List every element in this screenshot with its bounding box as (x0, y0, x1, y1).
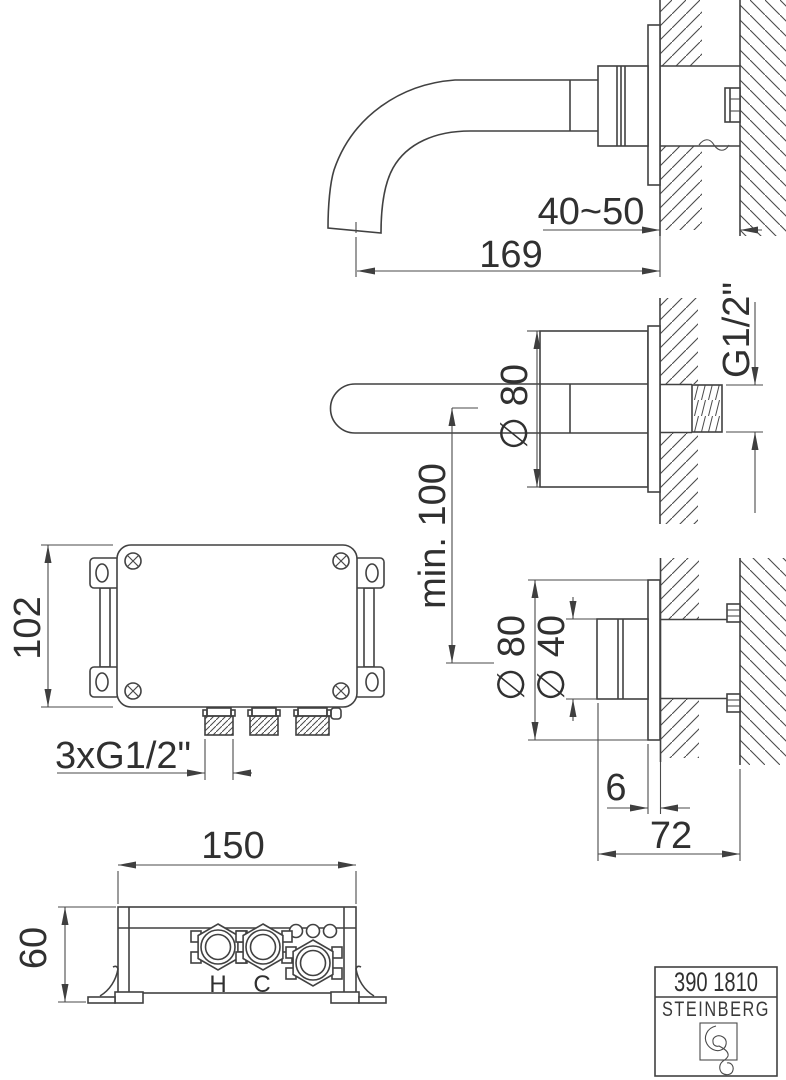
view-spout-side: 169 40~50 (328, 0, 786, 277)
rosette-flange (648, 25, 660, 185)
wall-hatch-back (740, 0, 786, 236)
rosette-flange (648, 580, 660, 740)
dim-body-width: 150 (201, 825, 264, 867)
label-cold: C (253, 971, 270, 998)
wall-fitting (727, 694, 740, 712)
wall-hatch-back (740, 558, 786, 765)
model-number: 390 1810 (674, 967, 758, 997)
bracket-tab (354, 558, 384, 588)
wall-hatch (660, 146, 702, 230)
bracket-tab (354, 667, 384, 697)
pilot-hole (324, 925, 337, 938)
dim-spout-length: 169 (479, 234, 542, 276)
mounting-foot (88, 966, 143, 1003)
bracket-tab (90, 558, 120, 588)
dim-thread-size: G1/2" (716, 282, 758, 378)
bracket-rail-right (364, 588, 374, 667)
wall-hatch (661, 558, 699, 619)
dim-handle-diameter: ∅ 40 (531, 615, 573, 701)
view-body-front: 102 3xG1/2" (7, 545, 384, 780)
wall-fitting (725, 88, 740, 122)
wall-hatch (660, 298, 698, 384)
bracket-rail-left (100, 588, 110, 667)
brand-name: STEINBERG (662, 998, 770, 1021)
wall-fitting (727, 604, 740, 622)
connection-nipple (203, 708, 235, 735)
dim-rosette-diameter-top: ∅ 80 (494, 364, 536, 450)
dim-plate-thickness: 6 (605, 767, 626, 809)
technical-drawing-steinberg-390-1810: 169 40~50 ∅ 80 G1/2" (0, 0, 786, 1080)
title-block: 390 1810 STEINBERG (655, 967, 777, 1076)
break-line (699, 140, 729, 151)
spout-base-cap (598, 66, 648, 146)
dim-min-clearance: min. 100 (412, 463, 454, 609)
label-hot: H (209, 971, 226, 998)
rosette-flange (648, 326, 660, 492)
view-valve-handle-side: ∅ 80 ∅ 40 6 72 (491, 558, 786, 861)
thread-section (692, 385, 722, 432)
dim-body-height: 102 (7, 596, 49, 659)
rosette-top (540, 331, 648, 487)
connection-nipple (248, 708, 280, 735)
view-body-bottom: H C 150 60 (13, 825, 386, 1003)
connection-nipple (294, 708, 341, 735)
outlet-port-nut (286, 940, 342, 986)
wall-hatch (660, 433, 698, 524)
dim-rosette-diameter: ∅ 80 (491, 615, 533, 701)
body-box (117, 545, 357, 707)
wall-hatch (660, 0, 702, 66)
cold-port-nut (236, 924, 292, 970)
pilot-hole (307, 925, 320, 938)
dim-body-depth: 60 (13, 927, 55, 969)
wall-hatch (661, 699, 699, 758)
drawing-page: 169 40~50 ∅ 80 G1/2" (0, 0, 786, 1080)
dim-mounting-depth: 72 (650, 815, 692, 857)
bracket-tab (90, 667, 120, 697)
dim-wall-depth-range: 40~50 (538, 191, 645, 233)
dim-connection-threads: 3xG1/2" (55, 735, 191, 777)
